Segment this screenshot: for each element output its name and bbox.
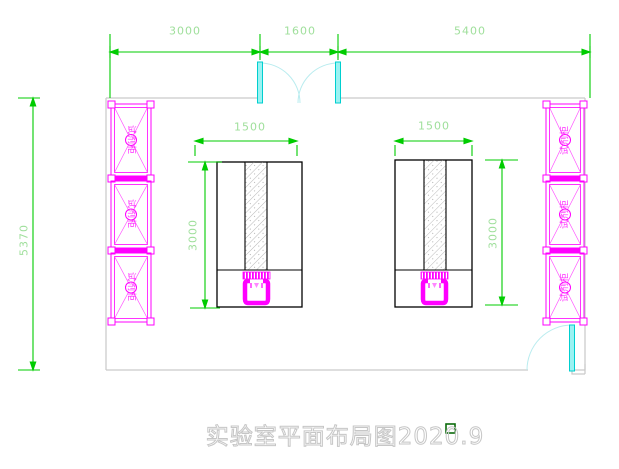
cabinet-label-right-3: 试剂柜 bbox=[558, 272, 571, 302]
dimension-top-chain bbox=[110, 34, 590, 98]
walls bbox=[106, 98, 585, 374]
cabinet-label-left-2: 试剂柜 bbox=[126, 199, 139, 229]
door-leaf bbox=[570, 325, 575, 371]
floor-plan-canvas: 3000 1600 5400 5370 1500 3000 1500 3000 … bbox=[0, 0, 619, 469]
dimension-label-top-door: 1600 bbox=[284, 25, 316, 38]
bench-right-hatch-strip bbox=[424, 160, 446, 270]
bench-left bbox=[217, 162, 302, 307]
dimension-label-left-wall: 5370 bbox=[18, 224, 31, 256]
dimension-label-bench-left-width: 1500 bbox=[234, 121, 266, 134]
cabinet-label-left-3: 试剂柜 bbox=[126, 272, 139, 302]
bottom-right-door bbox=[527, 325, 575, 371]
bench-left-hatch-strip bbox=[245, 162, 267, 270]
dimension-label-bench-right-width: 1500 bbox=[418, 120, 450, 133]
dimension-label-bench-right-depth: 3000 bbox=[487, 217, 500, 249]
floor-plan-drawing bbox=[0, 0, 619, 469]
dimension-label-bench-left-depth: 3000 bbox=[187, 219, 200, 251]
dimension-label-top-left: 3000 bbox=[169, 25, 201, 38]
door-swing-arc-right bbox=[298, 63, 338, 103]
cabinet-label-right-2: 试剂柜 bbox=[558, 199, 571, 229]
top-double-door bbox=[258, 62, 341, 103]
bench-right bbox=[395, 160, 472, 307]
door-swing-arc bbox=[527, 325, 572, 370]
dimension-label-top-right: 5400 bbox=[454, 25, 486, 38]
door-swing-arc-left bbox=[260, 63, 300, 103]
cabinet-label-right-1: 试剂柜 bbox=[558, 125, 571, 155]
door-leaf-left bbox=[258, 62, 263, 103]
door-leaf-right bbox=[336, 62, 341, 103]
cabinet-label-left-1: 试剂柜 bbox=[126, 125, 139, 155]
drawing-title: 实验室平面布局图2020.9 bbox=[206, 417, 484, 451]
